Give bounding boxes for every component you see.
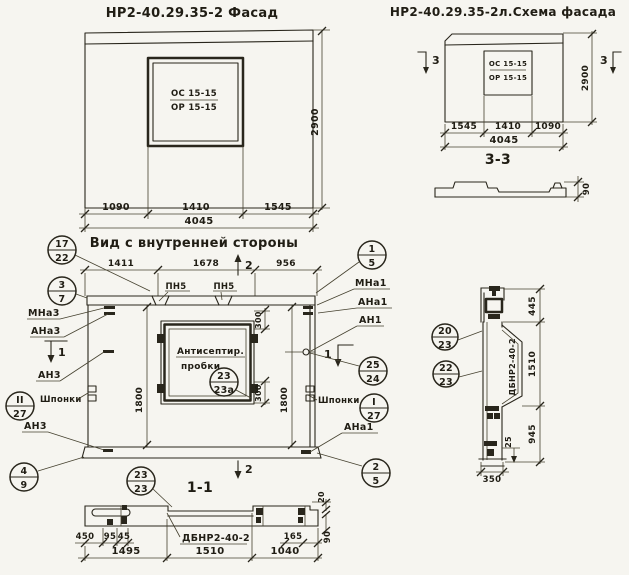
svg-text:27: 27 xyxy=(367,411,381,422)
section-marker-1-right: 1 xyxy=(324,345,353,367)
inner-panel-outline xyxy=(82,296,321,458)
svg-text:27: 27 xyxy=(13,409,27,420)
antiseptic-note-line1: Антисептир. xyxy=(177,347,244,357)
label-ana3: АНа3 xyxy=(31,326,61,337)
side-beam-mark-label: ДБНР2-40-2 xyxy=(508,338,517,396)
svg-text:22: 22 xyxy=(439,363,453,374)
facade-dim-height: 2900 xyxy=(310,108,321,136)
pn5-label-left: ПН5 xyxy=(165,282,186,292)
schema-dim-right: 1090 xyxy=(535,122,561,132)
section-marker-3-right: 3 xyxy=(600,52,621,74)
label-shponki-left: Шпонки xyxy=(40,395,82,405)
svg-text:II: II xyxy=(16,395,24,406)
facade-window-mark-bottom: ОР 15-15 xyxy=(171,103,217,113)
dim-95: 95 xyxy=(104,532,116,542)
facade-drawing: НР2-40.29.35-2 Фасад ОС 15-15 ОР 15-15 1… xyxy=(79,6,330,232)
callout-23-23a: 23 23а xyxy=(210,368,251,398)
inner-view-title: Вид с внутренней стороны xyxy=(90,236,298,251)
svg-text:4: 4 xyxy=(21,466,28,477)
svg-text:23а: 23а xyxy=(214,385,235,396)
facade-dim-left: 1090 xyxy=(102,202,130,213)
dim-450: 450 xyxy=(76,532,95,542)
svg-text:23: 23 xyxy=(439,377,453,388)
facade-dim-mid: 1410 xyxy=(182,202,210,213)
callout-I-27: I 27 xyxy=(360,394,388,422)
svg-text:2: 2 xyxy=(245,259,253,272)
svg-text:17: 17 xyxy=(55,239,69,250)
facade-window xyxy=(148,58,243,146)
svg-text:2: 2 xyxy=(373,462,380,473)
svg-text:1: 1 xyxy=(369,244,376,255)
callout-4-9: 4 9 xyxy=(10,457,84,491)
dim-90: 90 xyxy=(323,531,333,543)
inner-dim-right-height: 1800 xyxy=(280,387,290,413)
svg-text:23: 23 xyxy=(134,470,148,481)
section-3-3-profile: 90 xyxy=(435,176,592,202)
section-1-1-title: 1-1 xyxy=(187,480,213,496)
side-section-drawing: ДБНР2-40-2 350 25 445 1510 945 20 23 22 … xyxy=(432,285,545,485)
inner-dim-b: 1678 xyxy=(193,259,219,269)
svg-text:23: 23 xyxy=(438,340,452,351)
beam-mark-label: ДБНР2-40-2 xyxy=(182,533,250,544)
callout-25-24: 25 24 xyxy=(310,353,387,385)
dim-445: 445 xyxy=(528,296,538,316)
svg-text:24: 24 xyxy=(366,374,380,385)
section-3-3-thickness: 90 xyxy=(582,183,592,195)
callout-2-5: 2 5 xyxy=(317,453,390,487)
edge-anchor-marks xyxy=(88,306,315,454)
svg-text:5: 5 xyxy=(369,258,376,269)
facade-dim-total: 4045 xyxy=(184,216,213,227)
callout-23-23: 23 23 xyxy=(127,467,172,507)
dim-350: 350 xyxy=(483,475,502,485)
dim-945: 945 xyxy=(528,424,538,444)
svg-text:20: 20 xyxy=(438,326,452,337)
svg-text:3: 3 xyxy=(59,280,66,291)
section-1-1-drawing: 1-1 ДБНР2-40-2 450 95 45 1495 1510 1040 xyxy=(75,480,333,562)
label-an3-b: АН3 xyxy=(24,421,47,432)
label-mna1: МНа1 xyxy=(355,278,387,289)
section-marker-2-bottom: 2 xyxy=(235,461,253,479)
section-marker-3-left: 3 xyxy=(418,52,440,74)
dim-1495: 1495 xyxy=(111,546,140,557)
facade-panel-outline xyxy=(85,30,313,208)
svg-text:3: 3 xyxy=(600,54,608,67)
svg-text:23: 23 xyxy=(134,484,148,495)
section-3-3-title: 3-3 xyxy=(485,152,511,168)
inner-dim-a: 1411 xyxy=(108,259,134,269)
dim-25: 25 xyxy=(504,436,513,448)
svg-text:23: 23 xyxy=(217,371,231,382)
facade-dim-right: 1545 xyxy=(264,202,292,213)
drawing-sheet: НР2-40.29.35-2 Фасад ОС 15-15 ОР 15-15 1… xyxy=(0,0,629,575)
facade-title: НР2-40.29.35-2 Фасад xyxy=(106,6,279,21)
label-shponki-right: Шпонки xyxy=(318,396,360,406)
dim-1510-side: 1510 xyxy=(528,351,538,377)
svg-text:7: 7 xyxy=(59,294,66,305)
win-dim-bottom: 300 xyxy=(254,384,263,402)
svg-text:1: 1 xyxy=(58,346,66,359)
schema-window xyxy=(484,51,532,95)
svg-text:9: 9 xyxy=(21,480,28,491)
facade-window-mark-top: ОС 15-15 xyxy=(171,89,217,99)
svg-text:5: 5 xyxy=(373,476,380,487)
svg-text:2: 2 xyxy=(245,463,253,476)
svg-text:1: 1 xyxy=(324,348,332,361)
schema-drawing: НР2-40.29.35-2л.Схема фасада ОС 15-15 ОР… xyxy=(390,5,621,202)
dim-1510-bottom: 1510 xyxy=(195,546,224,557)
section-marker-1-left: 1 xyxy=(45,341,67,363)
inner-view-drawing: Вид с внутренней стороны 1411 1678 956 2… xyxy=(6,236,392,507)
win-dim-top: 300 xyxy=(254,311,263,329)
schema-window-mark-top: ОС 15-15 xyxy=(489,60,527,68)
inner-dim-left-height: 1800 xyxy=(135,387,145,413)
svg-text:3: 3 xyxy=(432,54,440,67)
schema-dim-total: 4045 xyxy=(489,135,518,146)
pn5-label-right: ПН5 xyxy=(213,282,234,292)
dim-165: 165 xyxy=(284,532,303,542)
drawing-canvas: НР2-40.29.35-2 Фасад ОС 15-15 ОР 15-15 1… xyxy=(0,0,629,575)
label-mna3: МНа3 xyxy=(28,308,60,319)
label-ana1-b: АНа1 xyxy=(344,422,374,433)
label-ana1: АНа1 xyxy=(358,297,388,308)
schema-window-mark-bottom: ОР 15-15 xyxy=(489,74,527,82)
svg-text:25: 25 xyxy=(366,360,380,371)
dim-20: 20 xyxy=(317,491,326,503)
svg-text:22: 22 xyxy=(55,253,69,264)
callout-3-7: 3 7 xyxy=(48,277,87,305)
callout-22-23: 22 23 xyxy=(433,361,482,388)
inner-dim-c: 956 xyxy=(276,259,296,269)
label-an3: АН3 xyxy=(38,370,61,381)
callout-20-23: 20 23 xyxy=(432,324,482,351)
dim-1040: 1040 xyxy=(270,546,299,557)
antiseptic-note-line2: пробки xyxy=(181,361,220,372)
section-marker-2-top: 2 xyxy=(235,254,253,275)
dim-45: 45 xyxy=(118,532,130,542)
label-an1: АН1 xyxy=(359,315,382,326)
svg-text:I: I xyxy=(372,397,376,408)
schema-dim-height: 2900 xyxy=(581,65,591,91)
schema-title: НР2-40.29.35-2л.Схема фасада xyxy=(390,5,616,19)
schema-dim-left: 1545 xyxy=(451,122,477,132)
schema-dim-mid: 1410 xyxy=(495,122,521,132)
callout-II-27: II 27 xyxy=(6,392,34,420)
